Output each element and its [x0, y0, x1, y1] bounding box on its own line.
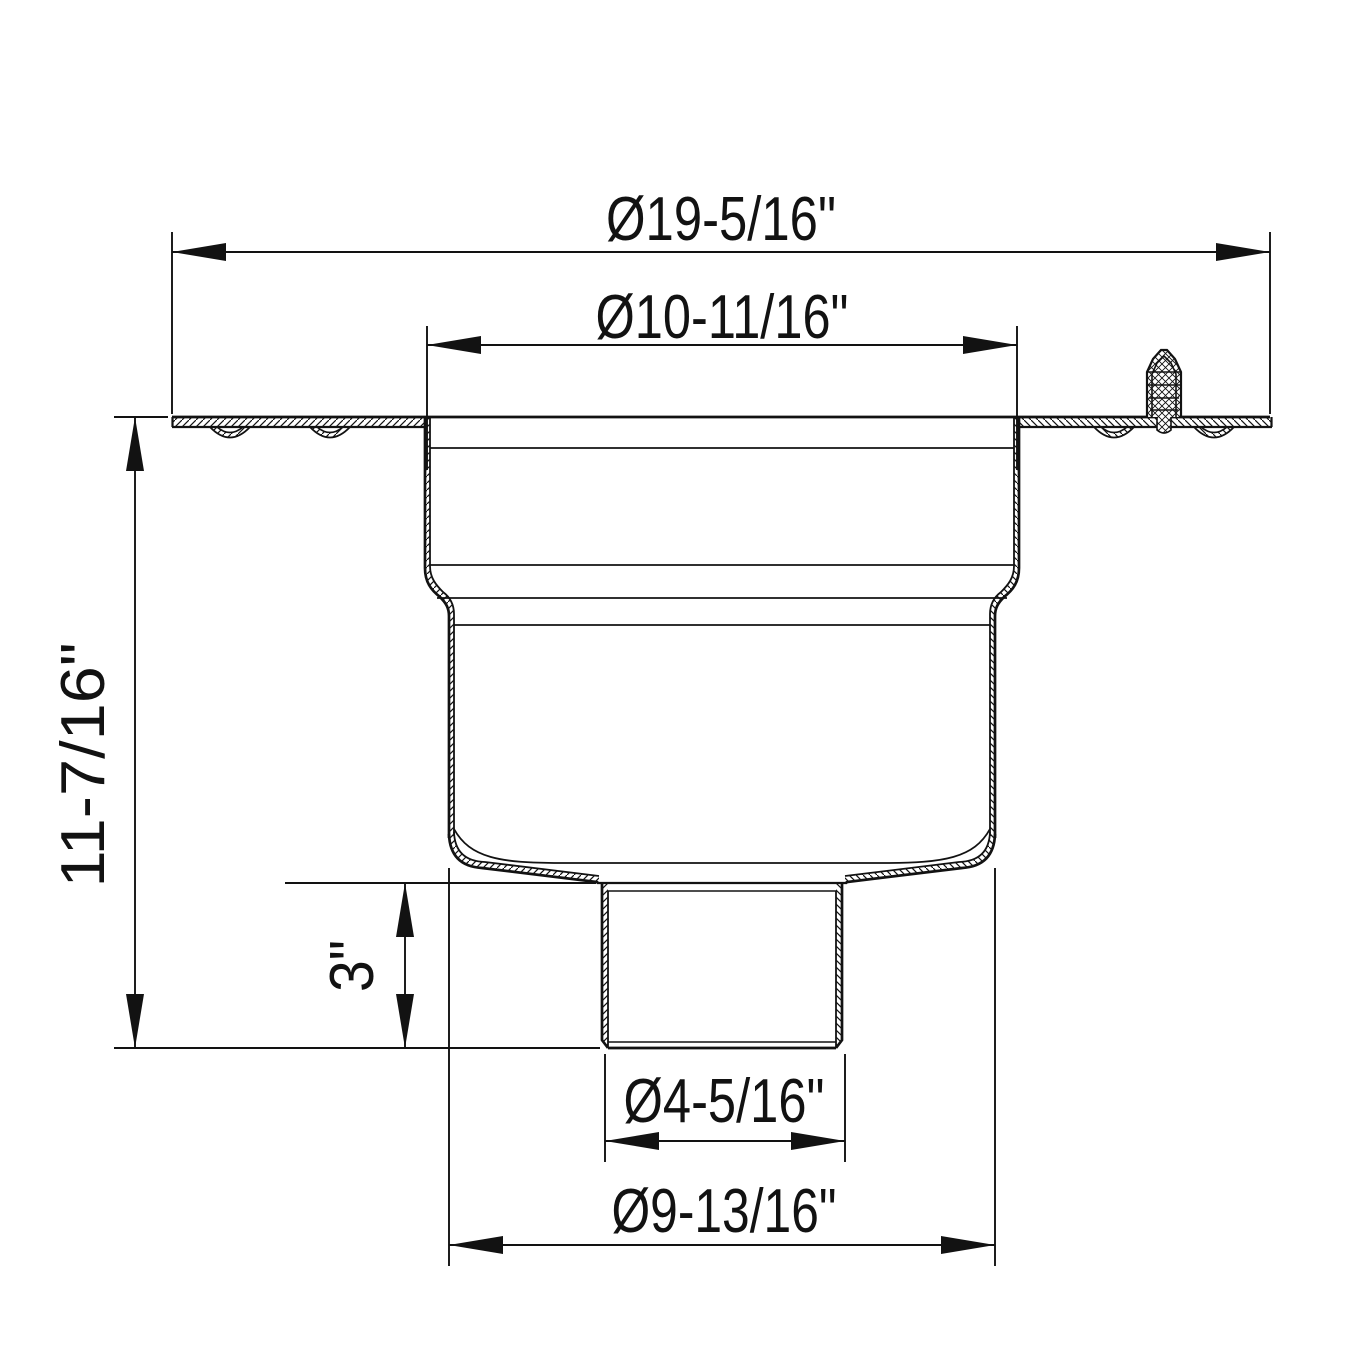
dim-label-overall-height: 11-7/16": [49, 643, 118, 888]
left-half: [172, 417, 608, 1048]
dim-label-flange-diameter: Ø19-5/16": [606, 185, 836, 254]
arrowhead-left: [172, 243, 226, 261]
dim-label-outlet-stub-length: 3": [318, 940, 387, 992]
arrowhead-bottom: [396, 994, 414, 1048]
dim-label-top-opening-diameter: Ø10-11/16": [596, 283, 849, 352]
floor-drain-section-drawing: Ø19-5/16" Ø10-11/16" 11-7/16": [0, 0, 1366, 1366]
drawing-canvas: Ø19-5/16" Ø10-11/16" 11-7/16": [0, 0, 1366, 1366]
arrowhead-right: [1216, 243, 1270, 261]
arrowhead-bottom: [126, 994, 144, 1048]
arrowhead-right: [963, 336, 1017, 354]
arrowhead-top: [126, 417, 144, 471]
arrowhead-left: [427, 336, 481, 354]
arrowhead-left: [449, 1236, 503, 1254]
right-half: [836, 417, 1272, 1048]
dimension-outlet-stub-length: 3": [285, 883, 596, 1048]
dimensions: Ø19-5/16" Ø10-11/16" 11-7/16": [49, 185, 1270, 1266]
arrowhead-right: [941, 1236, 995, 1254]
dimension-top-opening-diameter: Ø10-11/16": [427, 283, 1017, 470]
dimension-outlet-diameter: Ø4-5/16": [605, 1054, 845, 1162]
sump-floor-edge-line: [454, 829, 990, 863]
arrowhead-top: [396, 883, 414, 937]
dim-label-outlet-diameter: Ø4-5/16": [624, 1067, 825, 1136]
dim-label-sump-diameter: Ø9-13/16": [612, 1177, 837, 1246]
